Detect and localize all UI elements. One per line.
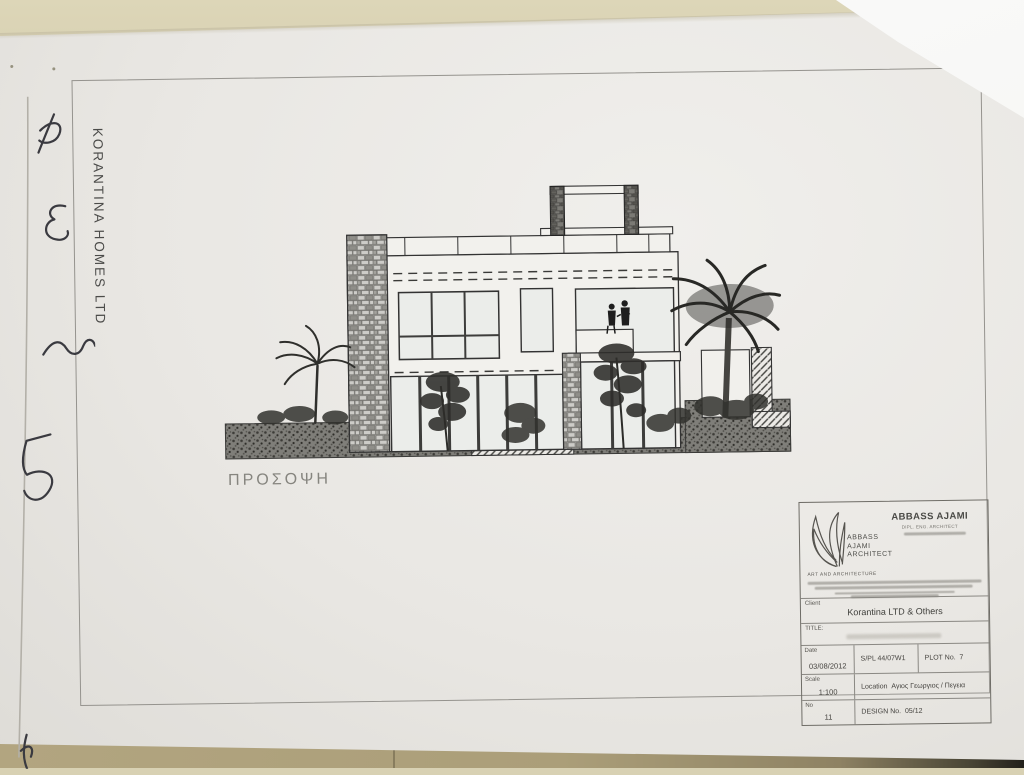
spl-cell: S/PL 44/07W1 <box>853 644 917 674</box>
design-no-label-value: DESIGN No. 05/12 <box>861 707 988 716</box>
title-label: TITLE: <box>805 626 823 632</box>
sheet-no-cell: No 11 <box>802 700 854 725</box>
client-label: Client <box>805 601 820 607</box>
scale-label: Scale <box>805 677 820 683</box>
lower-glazing-left <box>391 374 564 451</box>
spl-value: S/PL 44/07W1 <box>861 655 916 663</box>
location-value: Αγιος Γεωργιος / Πεγεια <box>891 682 965 690</box>
firm-tagline: ART AND ARCHITECTURE <box>807 572 876 578</box>
plot-label-value: PLOT No. 7 <box>925 654 988 662</box>
date-spl-plot-row: Date 03/08/2012 S/PL 44/07W1 PLOT No. 7 <box>801 642 989 674</box>
no-design-row: No 11 DESIGN No. 05/12 <box>802 698 990 725</box>
design-no-value: 05/12 <box>905 708 923 715</box>
logo-wordmark: ABBASS AJAMI ARCHITECT <box>847 534 893 560</box>
design-no-cell: DESIGN No. 05/12 <box>854 699 990 725</box>
date-cell: Date 03/08/2012 <box>801 645 853 674</box>
scale-cell: Scale 1:100 <box>802 675 854 700</box>
handwritten-initials <box>2 96 101 769</box>
roof-parapet <box>353 234 670 256</box>
scale-location-row: Scale 1:100 Location Αγιος Γεωργιος / Πε… <box>802 672 990 700</box>
scale-value: 1:100 <box>802 687 854 697</box>
title-block-firm-panel: ABBASS AJAMI ARCHITECT ABBASS AJAMI DIPL… <box>799 500 988 598</box>
sheet-no-label: No <box>805 703 813 709</box>
client-row: Client Korantina LTD & Others <box>801 595 989 622</box>
client-value: Korantina LTD & Others <box>801 605 989 618</box>
location-cell: Location Αγιος Γεωργιος / Πεγεια <box>854 673 990 700</box>
stone-pier-left <box>347 235 390 453</box>
staple-dot <box>10 65 13 68</box>
title-row: TITLE: <box>801 620 989 644</box>
sheet-no-value: 11 <box>802 712 854 722</box>
upper-window-left <box>398 291 499 359</box>
faint-title-text <box>846 633 941 639</box>
upper-window-center <box>520 288 553 351</box>
roof-tower <box>540 185 673 236</box>
stone-pier-mid <box>562 353 581 449</box>
date-label: Date <box>804 647 817 653</box>
illegible-text-line <box>808 579 982 584</box>
design-no-label: DESIGN No. <box>861 708 901 716</box>
drawing-content: KORANTINA HOMES LTD <box>0 0 1024 775</box>
location-label: Location <box>861 683 888 690</box>
architect-logo-icon <box>806 510 847 569</box>
illegible-text-line <box>904 532 966 535</box>
drawing-caption: ΠΡΟΣΟΨΗ <box>228 471 331 490</box>
plot-label: PLOT No. <box>925 654 956 661</box>
date-value: 03/08/2012 <box>802 662 854 672</box>
firm-credential: DIPL. ENG. ARCHITECT <box>878 523 982 529</box>
logo-line: ARCHITECT <box>847 551 893 560</box>
location-label-value: Location Αγιος Γεωργιος / Πεγεια <box>861 682 988 691</box>
plot-value: 7 <box>959 654 963 661</box>
firm-name: ABBASS AJAMI <box>878 510 982 522</box>
title-block: ABBASS AJAMI ARCHITECT ABBASS AJAMI DIPL… <box>798 499 991 726</box>
big-palm-tree <box>671 259 781 420</box>
staple-dot <box>52 67 55 70</box>
building-elevation-drawing <box>212 159 816 485</box>
plot-cell: PLOT No. 7 <box>917 643 989 673</box>
illegible-text-line <box>815 585 973 590</box>
